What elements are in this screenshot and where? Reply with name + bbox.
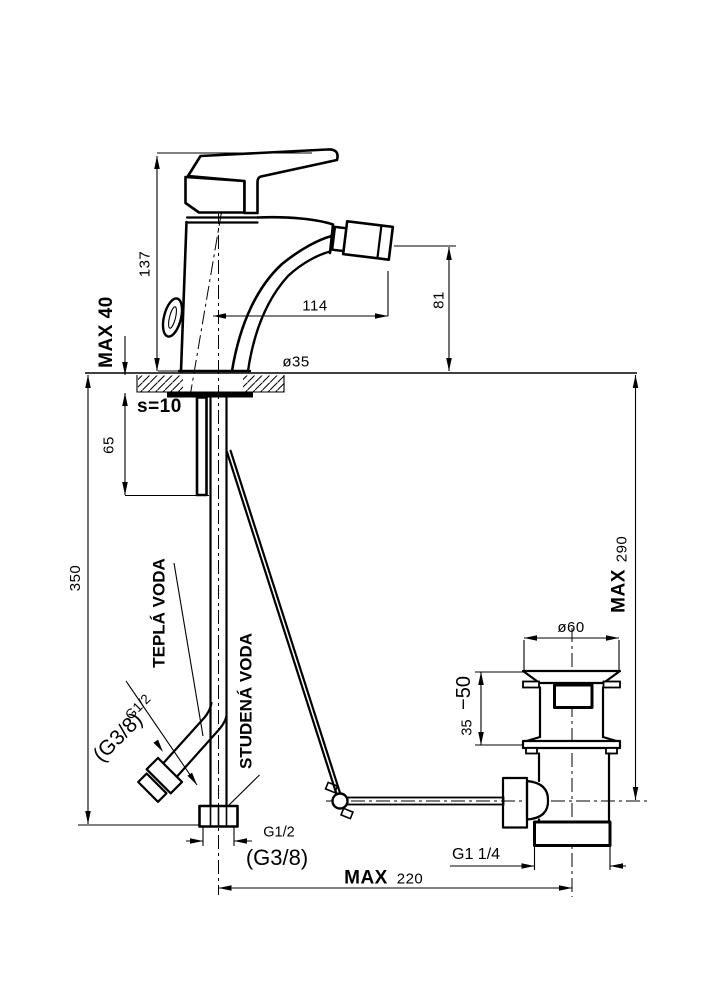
- dim-114-text: 114: [302, 298, 327, 315]
- cold-water-leader: [228, 775, 260, 806]
- dim-350-text: 350: [67, 565, 84, 592]
- cold-thread-alt-text: (G3/8): [246, 845, 308, 870]
- dim-max-deck: MAX 40: [96, 296, 128, 375]
- hot-fitting-nipple: [138, 774, 166, 802]
- cold-hose-fitting: [200, 806, 238, 827]
- drain-tee-walls: [539, 754, 609, 823]
- flange-tab-left: [523, 682, 539, 688]
- dim-rod-reach: MAX 220: [219, 868, 573, 891]
- rod-max-value-text: 220: [397, 871, 424, 888]
- flange-tab-right: [604, 682, 621, 688]
- waste-max-label-text: MAX: [609, 569, 630, 613]
- waste-max-value-text: 290: [614, 536, 631, 563]
- knurled-gland-nut: [503, 778, 527, 828]
- spout-top-edge: [258, 217, 334, 253]
- dim-137-text: 137: [137, 251, 154, 278]
- hot-water-leader: [174, 563, 203, 736]
- dim-cold-thread: G1/2 (G3/8): [186, 825, 308, 871]
- drain-overflow-hole: [555, 685, 593, 708]
- ball-joint-clamp-lower: [341, 808, 353, 818]
- waste-clamp-max-text: −50: [453, 676, 475, 710]
- hot-fitting-nut: [147, 758, 182, 793]
- rod-port-dome: [527, 781, 548, 820]
- dim-spout-reach: 114: [213, 271, 388, 319]
- cold-water-text: STUDENÁ VODA: [237, 633, 256, 769]
- mid-tab-right: [606, 748, 617, 754]
- dim-max40-text: MAX 40: [96, 296, 117, 368]
- dim-spout-height: 81: [394, 246, 456, 371]
- handle-base-wedge: [186, 177, 245, 213]
- pop-up-linkage: [227, 451, 504, 819]
- dim-waste-thread: G1 1/4: [450, 846, 626, 870]
- label-plate-thickness: s=10: [137, 396, 182, 417]
- threaded-shank: [197, 398, 207, 496]
- dim-65-text: 65: [101, 436, 118, 454]
- ball-joint-clamp-upper: [326, 782, 338, 792]
- body-left-edge: [181, 222, 187, 371]
- counter-hatch-right: [243, 376, 284, 392]
- cold-thread-text: G1/2: [263, 825, 294, 841]
- counter-hatch-left: [138, 376, 183, 392]
- hot-hose-fitting: [136, 758, 182, 804]
- technical-drawing-page: 137 MAX 40 65 350 114 81 ø35 s=10 TEPLÁ …: [0, 0, 707, 1000]
- bidet-mixer-drawing: 137 MAX 40 65 350 114 81 ø35 s=10 TEPLÁ …: [0, 0, 707, 1000]
- waste-thread-text: G1 1/4: [452, 846, 500, 863]
- clamp-block: [341, 808, 353, 818]
- label-hot-water: TEPLÁ VODA: [150, 558, 204, 736]
- spout-nozzle: [343, 221, 393, 259]
- counter-deck: [85, 373, 637, 398]
- body-tilt-centerline: [190, 212, 222, 397]
- drain-mid-flange: [523, 741, 620, 748]
- faucet-body: [158, 149, 393, 371]
- label-hole-diameter: ø35: [282, 354, 309, 371]
- dim-81-text: 81: [431, 291, 448, 309]
- drain-tailpiece: [535, 822, 611, 846]
- hot-hose-upper-edge: [164, 703, 212, 763]
- rod-max-label-text: MAX: [344, 868, 388, 889]
- ball-joint: [333, 794, 348, 809]
- mid-tab-left: [526, 748, 537, 754]
- waste-dia-text: ø60: [557, 619, 584, 636]
- waste-clamp-min-text: 35: [460, 719, 476, 735]
- hot-water-text: TEPLÁ VODA: [150, 558, 169, 668]
- dim-waste-height: MAX 290: [609, 375, 639, 800]
- dim-waste-clamp: −50 35: [453, 672, 523, 745]
- nozzle-body: [343, 221, 393, 259]
- hot-thread-alt-text: (G3/8): [89, 708, 147, 766]
- drain-assembly: [503, 671, 620, 846]
- clamp-block: [326, 782, 338, 792]
- label-cold-water: STUDENÁ VODA: [228, 633, 260, 806]
